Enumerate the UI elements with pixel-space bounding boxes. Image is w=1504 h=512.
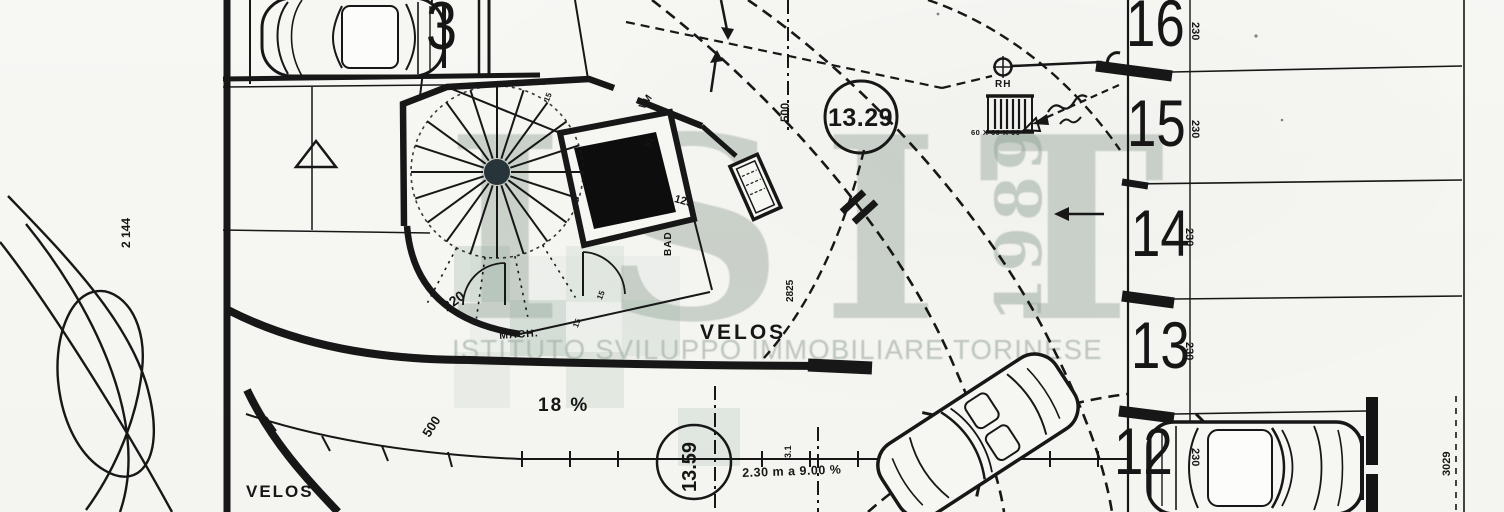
stall-12-depth: 230 xyxy=(1189,448,1200,466)
ramp-station: 3.1 xyxy=(784,445,793,458)
room-velos-left: VELOS xyxy=(246,483,314,500)
dim-curve-width: 220 xyxy=(440,288,467,313)
stall-14-depth: 230 xyxy=(1183,228,1194,246)
room-bad: BAD xyxy=(664,231,674,256)
scanned-site-plan: ISIT1989ISTITUTO SVILUPPO IMMOBILIARE TO… xyxy=(0,0,1504,512)
dim-wall-15-a: 15 xyxy=(543,92,554,103)
door-vm: VM xyxy=(638,94,655,112)
stall-13-depth: 230 xyxy=(1183,342,1194,360)
level-marker-upper: 13.29 xyxy=(828,106,893,131)
stall-13-number: 13 xyxy=(1131,312,1190,378)
level-marker-lower: 13.59 xyxy=(680,442,700,492)
room-mach: MACH. xyxy=(499,328,539,341)
survey-rh-label: RH xyxy=(995,80,1011,90)
stall-3-number: 3 xyxy=(426,0,457,60)
stall-12-number: 12 xyxy=(1114,418,1173,484)
stall-14-number: 14 xyxy=(1131,200,1190,266)
room-velos-main: VELOS xyxy=(700,322,786,343)
dim-wall-15-b: 15 xyxy=(596,290,607,301)
label-layer: 3161514131223023023023023013.2913.5918 %… xyxy=(0,0,1504,512)
survey-rh-note: 60 X 60 X 60 xyxy=(971,129,1020,137)
stall-16-number: 16 xyxy=(1126,0,1185,56)
ramp-slope: 18 % xyxy=(538,396,589,415)
dim-wall-15-c: 15 xyxy=(572,318,583,329)
dim-right-vertical: 3029 xyxy=(1442,452,1453,476)
stall-16-depth: 230 xyxy=(1189,22,1200,40)
dim-wall-125: 125 xyxy=(673,194,694,210)
stall-15-depth: 230 xyxy=(1189,120,1200,138)
stall-15-number: 15 xyxy=(1127,90,1186,156)
dim-curve-radius: 500 xyxy=(420,414,443,439)
dim-section: 2825 xyxy=(786,280,796,302)
dim-entry-51: 51 xyxy=(643,136,656,149)
dim-left-vertical: 2 144 xyxy=(120,218,132,248)
ramp-note: 2.30 m a 9.00 % xyxy=(742,464,842,480)
dim-top-vertical: 500 xyxy=(781,103,793,122)
